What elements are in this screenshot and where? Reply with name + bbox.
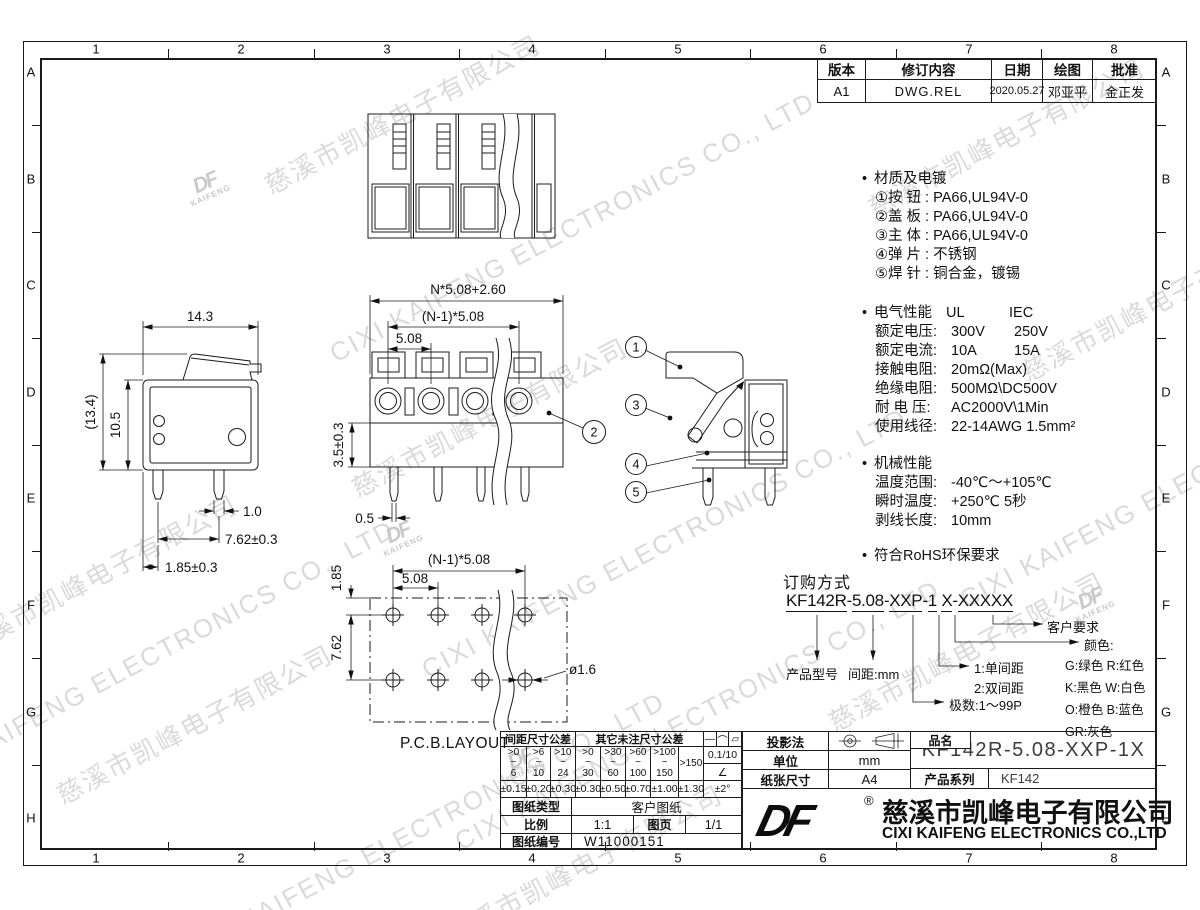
- spec-value: +250℃ 5秒: [951, 494, 1027, 510]
- projection-symbol-cell: [828, 731, 911, 751]
- scale-label: 比例: [500, 815, 572, 834]
- material-title: 材质及电镀: [874, 171, 947, 187]
- side-view: 14.3 (13.4) 10.5 1.0 7.62±0.3 1.85±0.3: [75, 300, 335, 600]
- spec-label: 接触电阻:: [875, 361, 951, 380]
- dim-offset: 0.5: [355, 511, 374, 526]
- spec-value: 250V: [1014, 324, 1048, 340]
- rohs-note: •符合RoHS环保要求: [862, 547, 1000, 566]
- spec-label: 额定电压:: [875, 323, 951, 342]
- mechanical-row: 温度范围:-40℃～+105℃: [862, 474, 1052, 493]
- revision-table: 版本 修订内容 日期 绘图 批准 A1 DWG.REL 2020.05.27 邓…: [817, 58, 1157, 103]
- tol-pitch-header: 间距尺寸公差: [500, 731, 576, 747]
- tol-range: >6 ~ 10: [526, 746, 551, 781]
- tol-range: >100 ~ 150: [650, 746, 679, 781]
- tol-flatness-value: 0.1/10: [703, 746, 742, 764]
- material-item: ④弹 片 : 不锈钢: [862, 246, 1028, 265]
- tol-value: ±0.50: [600, 780, 626, 798]
- unit-value: mm: [828, 750, 911, 770]
- bullet-icon: •: [862, 304, 874, 323]
- zone-row-label: G: [26, 705, 36, 720]
- tol-value: ±0.30: [550, 780, 576, 798]
- zone-col-label: 6: [819, 42, 826, 57]
- callout-dot: [668, 416, 673, 421]
- zone-tick: [1157, 232, 1166, 233]
- callout-number-3: 3: [633, 399, 640, 413]
- scale-value: 1:1: [571, 815, 634, 834]
- tol-range: >0 ~ 30: [575, 746, 601, 781]
- tol-value: ±0.30: [575, 780, 601, 798]
- front-view-break-mask: [491, 338, 511, 505]
- pcb-dimensions: [346, 565, 566, 680]
- paper-size-label: 纸张尺寸: [742, 769, 829, 789]
- zone-col-label: 4: [528, 42, 535, 57]
- zone-row-label: F: [27, 598, 35, 613]
- ordering-label-poles: 极数:1～99P: [949, 695, 1022, 714]
- tol-value: ±1.00: [650, 780, 679, 798]
- pcb-layout-label: P.C.B.LAYOUT: [400, 735, 510, 752]
- zone-col-label: 3: [383, 851, 390, 866]
- zone-tick: [1157, 445, 1166, 446]
- callout-number-4: 4: [633, 458, 640, 472]
- spec-value: 10mm: [951, 513, 991, 529]
- spec-value: 500MΩ\DC500V: [951, 381, 1057, 397]
- paper-size-value: A4: [828, 769, 911, 789]
- zone-col-label: 5: [674, 851, 681, 866]
- title-block: 投影法 单位 mm 纸张尺寸 A4 KF142R-5.08-XXP-1X 品名 …: [742, 731, 1157, 850]
- zone-tick: [32, 125, 41, 126]
- dim-pitch: 5.08: [396, 331, 422, 346]
- zone-tick: [1157, 658, 1166, 659]
- tol-symbols: — ⌒ ▱: [703, 731, 742, 747]
- material-item: ⑤焊 针 : 铜合金，镀锡: [862, 265, 1028, 284]
- electrical-row: 额定电压:300V250V: [862, 323, 1075, 342]
- series-label: 产品系列: [910, 768, 989, 789]
- section-view-leaders: [645, 350, 709, 493]
- plan-view-break-mask: [499, 114, 519, 238]
- mechanical-section: •机械性能 温度范围:-40℃～+105℃ 瞬时温度:+250℃ 5秒 剥线长度…: [862, 455, 1052, 531]
- tol-range: >30 ~ 60: [600, 746, 626, 781]
- zone-row-label: D: [26, 385, 35, 400]
- zone-tick: [1157, 551, 1166, 552]
- mechanical-row: 剥线长度:10mm: [862, 512, 1052, 531]
- ordering-label-color-title: 颜色:: [1084, 635, 1114, 654]
- ordering-leader-lines: [817, 615, 1079, 702]
- ordering-section: 订购方式 KF142R-5.08-XXP-1 X-XXXXX 产品型号 间距:m…: [778, 565, 1156, 740]
- zone-col-label: 8: [1110, 42, 1117, 57]
- callout-dot: [547, 411, 552, 416]
- tol-value: ±0.15: [500, 780, 527, 798]
- spec-value: AC2000V\1Min: [951, 400, 1049, 416]
- electrical-row: 使用线径:22-14AWG 1.5mm²: [862, 418, 1075, 437]
- revision-header-approved: 批准: [1092, 58, 1157, 80]
- ordering-label-color: G:绿色 R:红色: [1065, 655, 1144, 674]
- spec-label: 使用线径:: [875, 418, 951, 437]
- zone-tick: [168, 49, 169, 58]
- material-item: ①按 钮 : PA66,UL94V-0: [862, 189, 1028, 208]
- spec-value: 20mΩ(Max): [951, 362, 1027, 378]
- tol-value: ±0.70: [625, 780, 651, 798]
- dim-total: N*5.08+2.60: [430, 282, 505, 297]
- zone-row-label: D: [1161, 385, 1170, 400]
- projection-label: 投影法: [742, 731, 829, 751]
- zone-col-label: 4: [528, 851, 535, 866]
- dim-span: (N-1)*5.08: [422, 309, 484, 324]
- first-angle-projection-icon: [830, 732, 910, 750]
- drawing-type-value: 客户图纸: [571, 797, 742, 816]
- zone-col-label: 8: [1110, 851, 1117, 866]
- company-name-en: CIXI KAIFENG ELECTRONICS CO.,LTD: [882, 825, 1154, 843]
- revision-version: A1: [817, 79, 866, 103]
- straightness-symbol: —: [704, 734, 716, 745]
- revision-header-version: 版本: [817, 58, 866, 80]
- tolerance-table: 间距尺寸公差 其它未注尺寸公差 — ⌒ ▱ >0 ~ 6 >6 ~ 10 >10…: [500, 731, 742, 850]
- ordering-label-color: K:黑色 W:白色: [1065, 677, 1145, 696]
- zone-row-label: G: [1161, 705, 1171, 720]
- zone-tick: [32, 658, 41, 659]
- pcb-layout-view: (N-1)*5.08 5.08 1.85 7.62 ø1.6 P.C.B.LAY…: [330, 545, 660, 760]
- bullet-icon: •: [862, 455, 874, 474]
- zone-row-label: A: [1162, 65, 1171, 80]
- callout-number-2: 2: [591, 426, 598, 440]
- callout-dot: [705, 451, 710, 456]
- zone-col-label: 3: [383, 42, 390, 57]
- tol-range: >0 ~ 6: [500, 746, 527, 781]
- dim-pcb-hole: ø1.6: [569, 662, 596, 677]
- tol-angle-symbol: ∠: [703, 763, 742, 781]
- dim-pcb-pitch: 5.08: [402, 571, 428, 586]
- zone-row-label: H: [26, 811, 35, 826]
- electrical-col-ul: UL: [946, 304, 1009, 323]
- series-value: KF142: [988, 768, 1157, 789]
- zone-row-label: E: [27, 491, 36, 506]
- zone-row-label: A: [27, 65, 36, 80]
- revision-content: DWG.REL: [865, 79, 992, 103]
- material-section: •材质及电镀 ①按 钮 : PA66,UL94V-0 ②盖 板 : PA66,U…: [862, 170, 1028, 284]
- part-name-label: 品名: [910, 731, 971, 749]
- zone-tick: [459, 49, 460, 58]
- zone-col-label: 2: [237, 851, 244, 866]
- spec-label: 瞬时温度:: [875, 493, 951, 512]
- spec-label: 剥线长度:: [875, 512, 951, 531]
- bullet-icon: •: [862, 170, 874, 189]
- spec-value: 10A: [951, 342, 1014, 361]
- dim-width: 14.3: [187, 309, 213, 324]
- tol-value: ±0.20: [526, 780, 551, 798]
- plan-view-outline: [368, 114, 555, 238]
- zone-tick: [314, 842, 315, 851]
- dim-total-height: (13.4): [83, 394, 98, 429]
- electrical-section: •电气性能ULIEC 额定电压:300V250V 额定电流:10A15A 接触电…: [862, 304, 1075, 437]
- plan-view: [363, 110, 563, 245]
- ordering-label-color: O:橙色 B:蓝色: [1065, 699, 1143, 718]
- zone-col-label: 7: [965, 851, 972, 866]
- electrical-row: 接触电阻:20mΩ(Max): [862, 361, 1075, 380]
- ordering-label-double: 2:双间距: [974, 678, 1024, 697]
- dim-pin-offset: 1.85±0.3: [165, 560, 217, 575]
- zone-row-label: B: [27, 172, 36, 187]
- drawing-type-label: 图纸类型: [500, 797, 572, 816]
- spec-value: 300V: [951, 323, 1014, 342]
- revision-header-drawn: 绘图: [1042, 58, 1093, 80]
- electrical-col-iec: IEC: [1009, 305, 1033, 321]
- rohs-text: 符合RoHS环保要求: [874, 548, 1000, 564]
- zone-row-label: F: [1162, 598, 1170, 613]
- zone-tick: [1157, 125, 1166, 126]
- revision-header-content: 修订内容: [865, 58, 992, 80]
- zone-row-label: E: [1162, 491, 1171, 506]
- zone-tick: [32, 445, 41, 446]
- callout-dot: [678, 365, 683, 370]
- dim-pcb-offset: 1.85: [330, 565, 344, 591]
- zone-col-label: 1: [92, 851, 99, 866]
- zone-tick: [1041, 49, 1042, 58]
- ordering-label-model: 产品型号: [786, 664, 838, 683]
- dim-pcb-span: (N-1)*5.08: [428, 552, 490, 567]
- ordering-label-pitch: 间距:mm: [848, 664, 899, 683]
- callout-number-5: 5: [633, 486, 640, 500]
- dim-body-height: 10.5: [108, 412, 123, 438]
- dim-lower-height: 3.5±0.3: [331, 423, 346, 468]
- sheet-label: 图页: [633, 815, 686, 834]
- front-view-outline: [370, 352, 563, 501]
- sheet-value: 1/1: [685, 815, 742, 834]
- electrical-row: 绝缘电阻:500MΩ\DC500V: [862, 380, 1075, 399]
- mechanical-row: 瞬时温度:+250℃ 5秒: [862, 493, 1052, 512]
- zone-row-label: C: [1161, 278, 1170, 293]
- tol-other-header: 其它未注尺寸公差: [575, 731, 704, 747]
- zone-tick: [168, 842, 169, 851]
- zone-col-label: 1: [92, 42, 99, 57]
- zone-col-label: 7: [965, 42, 972, 57]
- electrical-row: 耐 电 压:AC2000V\1Min: [862, 399, 1075, 418]
- zone-col-label: 6: [819, 851, 826, 866]
- tol-angle-value: ±2°: [703, 780, 742, 798]
- electrical-title: 电气性能: [874, 304, 946, 323]
- spec-label: 温度范围:: [875, 474, 951, 493]
- callout-dot: [707, 478, 712, 483]
- material-item: ③主 体 : PA66,UL94V-0: [862, 227, 1028, 246]
- spec-value: 15A: [1014, 343, 1040, 359]
- material-item: ②盖 板 : PA66,UL94V-0: [862, 208, 1028, 227]
- tol-range: >10 ~ 24: [550, 746, 576, 781]
- zone-tick: [459, 842, 460, 851]
- drawing-number-value: W11000151: [571, 833, 742, 850]
- engineering-drawing-sheet: 慈溪市凯峰电子有限公司 CIXI KAIFENG ELECTRONICS CO.…: [0, 0, 1200, 910]
- section-view: 1 3 4 5: [600, 320, 860, 550]
- zone-tick: [32, 338, 41, 339]
- spec-value: -40℃～+105℃: [951, 475, 1052, 491]
- zone-tick: [32, 232, 41, 233]
- mechanical-title: 机械性能: [874, 456, 932, 472]
- zone-row-label: B: [1162, 172, 1171, 187]
- flatness-symbol: ▱: [729, 734, 741, 745]
- dim-pcb-row-pitch: 7.62: [330, 635, 344, 661]
- zone-tick: [605, 49, 606, 58]
- tol-value: ±1.30: [678, 780, 704, 798]
- ordering-label-single: 1:单间距: [974, 658, 1024, 677]
- zone-row-label: C: [26, 278, 35, 293]
- front-view: 2 N*5.08+2.60 (N-1)*5.08 5.08 3.5±0.3 0.…: [330, 280, 615, 550]
- zone-col-label: 2: [237, 42, 244, 57]
- zone-tick: [1157, 338, 1166, 339]
- zone-tick: [750, 49, 751, 58]
- ordering-label-customer: 客户要求: [1047, 617, 1099, 636]
- bullet-icon: •: [862, 547, 874, 566]
- unit-label: 单位: [742, 750, 829, 770]
- zone-tick: [314, 49, 315, 58]
- revision-header-date: 日期: [991, 58, 1043, 80]
- tol-range: >60 ~ 100: [625, 746, 651, 781]
- revision-approved-by: 金正发: [1092, 79, 1157, 103]
- spec-notes: •材质及电镀 ①按 钮 : PA66,UL94V-0 ②盖 板 : PA66,U…: [862, 162, 1158, 582]
- tol-range-over150: >150: [678, 746, 704, 781]
- side-view-outline: [143, 354, 261, 499]
- zone-tick: [1157, 765, 1166, 766]
- zone-col-label: 5: [674, 42, 681, 57]
- spec-label: 耐 电 压:: [875, 399, 951, 418]
- spec-label: 绝缘电阻:: [875, 380, 951, 399]
- arc-symbol: ⌒: [716, 732, 730, 747]
- registered-trademark-icon: ®: [864, 793, 874, 808]
- zone-tick: [32, 765, 41, 766]
- dim-pin-pitch: 7.62±0.3: [225, 532, 277, 547]
- drawing-number-label: 图纸编号: [500, 833, 572, 850]
- spec-value: 22-14AWG 1.5mm²: [951, 419, 1075, 435]
- zone-tick: [32, 551, 41, 552]
- spec-label: 额定电流:: [875, 342, 951, 361]
- section-view-outline: [666, 352, 787, 505]
- revision-date: 2020.05.27: [991, 79, 1043, 103]
- revision-drawn-by: 邓亚平: [1042, 79, 1093, 103]
- callout-number-1: 1: [633, 341, 640, 355]
- zone-tick: [896, 49, 897, 58]
- dim-pin-width: 1.0: [243, 504, 262, 519]
- electrical-row: 额定电流:10A15A: [862, 342, 1075, 361]
